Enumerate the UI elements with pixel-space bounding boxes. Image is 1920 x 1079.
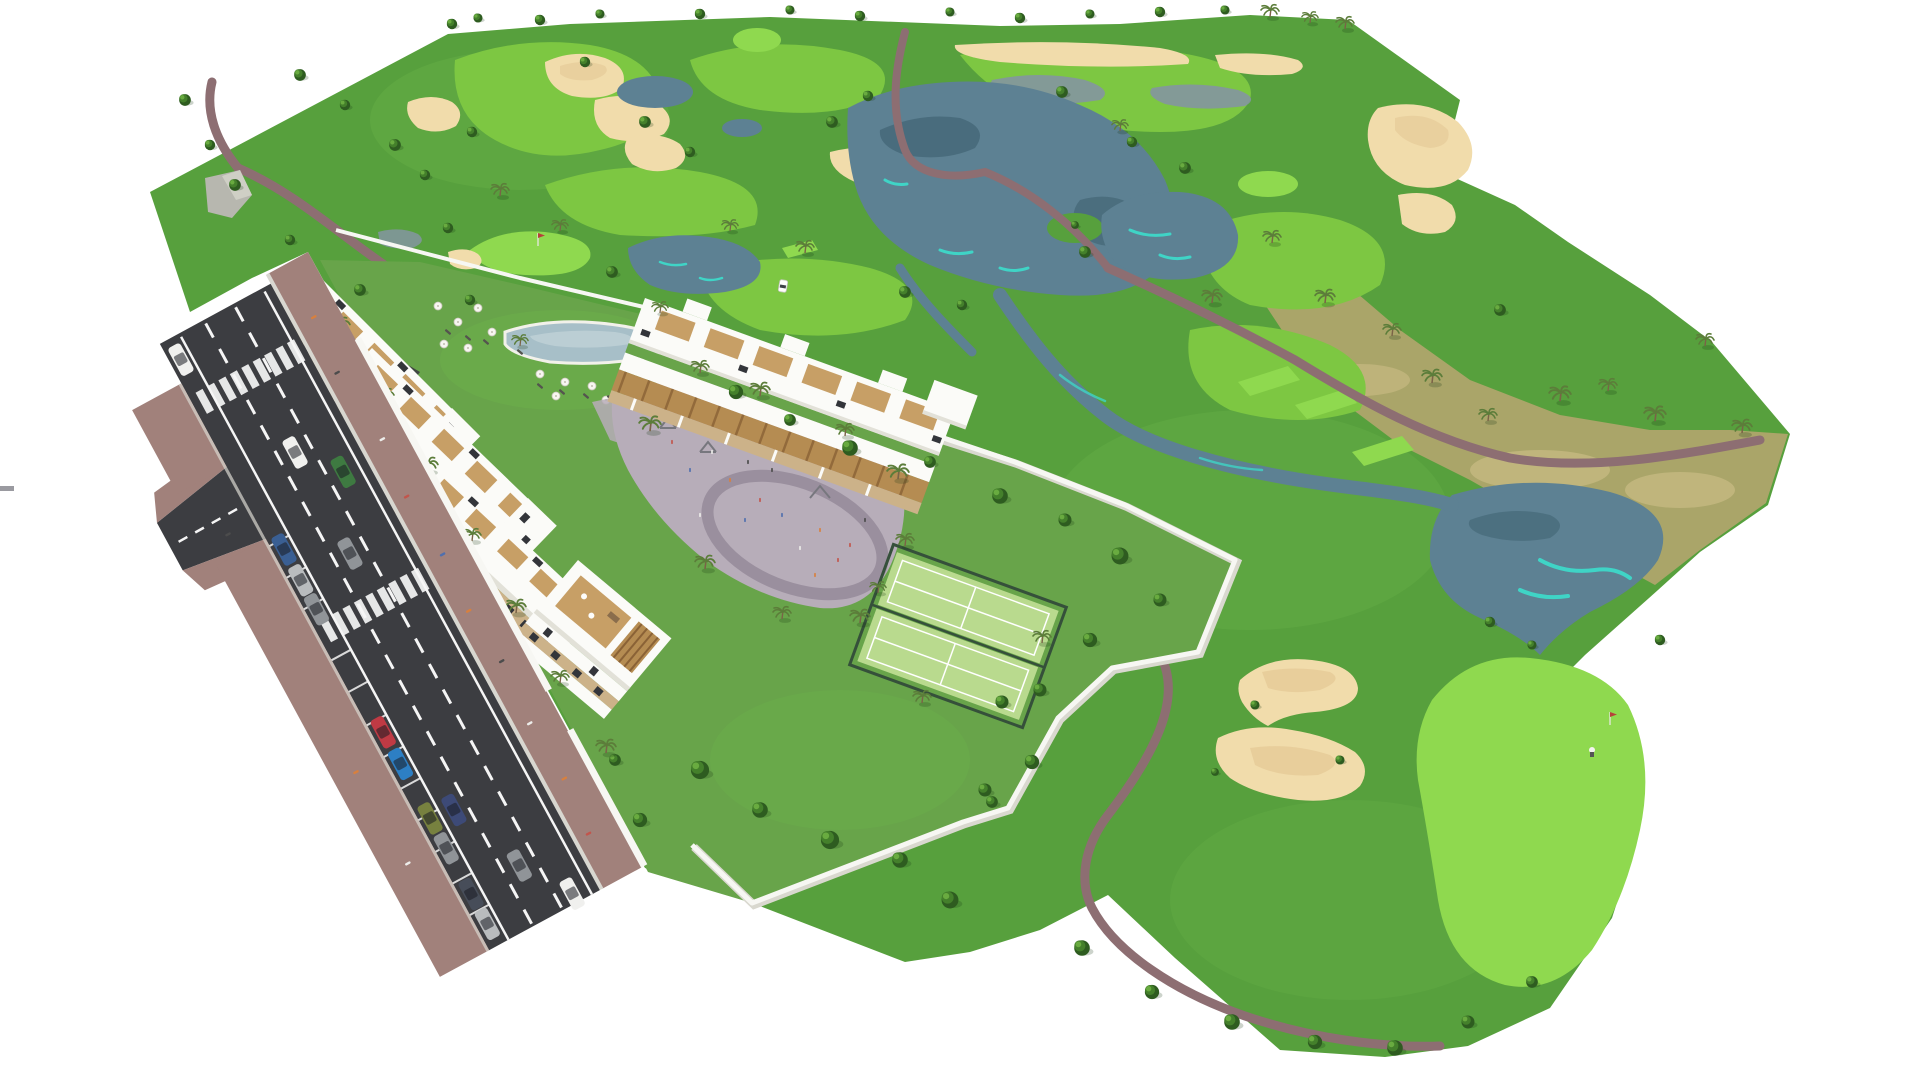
putting-green-18th: [1417, 657, 1646, 986]
putting-green: [733, 28, 781, 52]
render-canvas: [0, 0, 1920, 1079]
golfer-legs: [1590, 752, 1594, 757]
pond: [617, 76, 693, 108]
scrub-dry-patch: [1625, 472, 1735, 508]
lawn-highlight: [710, 690, 970, 830]
aerial-masterplan-render: [0, 0, 1920, 1079]
upper-right-lake: [1101, 192, 1238, 280]
golf-cart: [778, 279, 788, 292]
pond: [722, 119, 762, 137]
putting-green: [1238, 171, 1298, 197]
